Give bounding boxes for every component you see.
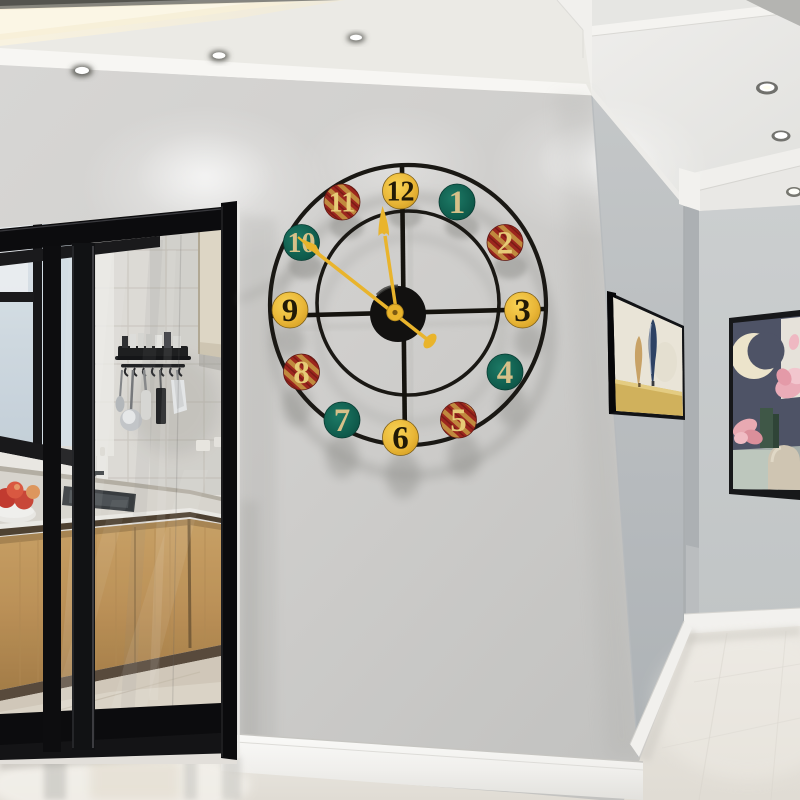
svg-text:5: 5 bbox=[450, 403, 467, 439]
svg-text:4: 4 bbox=[497, 355, 514, 391]
svg-text:12: 12 bbox=[387, 177, 415, 208]
svg-text:11: 11 bbox=[329, 188, 355, 219]
svg-text:3: 3 bbox=[514, 293, 531, 329]
svg-text:7: 7 bbox=[334, 403, 351, 439]
svg-text:6: 6 bbox=[392, 421, 409, 457]
svg-text:2: 2 bbox=[497, 226, 514, 262]
svg-text:9: 9 bbox=[282, 293, 299, 329]
svg-text:8: 8 bbox=[293, 355, 310, 391]
svg-text:1: 1 bbox=[449, 185, 466, 221]
